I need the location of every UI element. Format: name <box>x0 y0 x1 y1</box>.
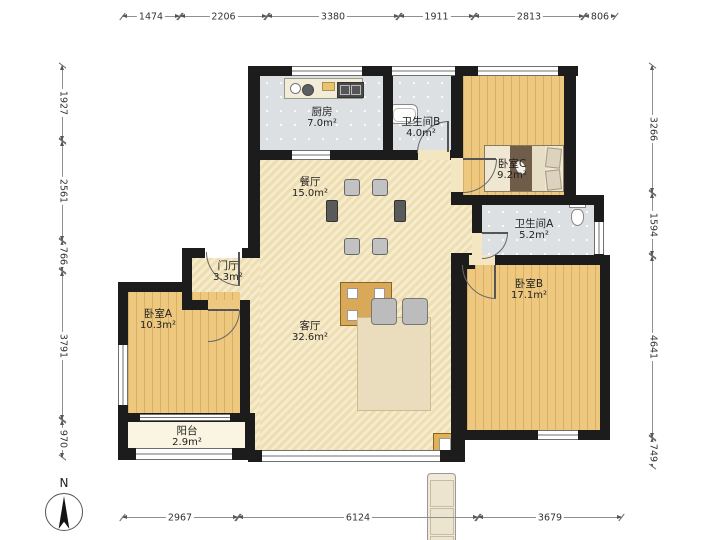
room-name: 卧室C <box>470 158 554 170</box>
wall <box>451 430 610 440</box>
wall <box>240 300 250 422</box>
dining-chair <box>372 238 388 255</box>
room-label-bath-a: 卫生间A 5.2m² <box>492 218 576 242</box>
room-area: 4.0m² <box>379 128 463 140</box>
stove-icon <box>337 82 364 98</box>
dim-top-6: 806 <box>584 10 616 23</box>
dining-side-chair <box>326 200 338 222</box>
sink-basin-icon <box>302 84 314 96</box>
bedroom-a-door-leaf <box>208 309 239 311</box>
room-name: 卧室B <box>487 278 571 290</box>
room-name: 门厅 <box>186 260 270 272</box>
wall <box>118 282 192 292</box>
dim-top-3: 3380 <box>267 10 399 23</box>
room-label-dining: 餐厅 15.0m² <box>268 176 352 200</box>
room-label-balcony: 阳台 2.9m² <box>145 425 229 449</box>
room-name: 卧室A <box>116 308 200 320</box>
room-area: 17.1m² <box>487 290 571 302</box>
dim-left-3: 766 <box>56 241 69 271</box>
room-area: 9.2m² <box>470 170 554 182</box>
wall <box>248 66 260 258</box>
room-area: 32.6m² <box>268 332 352 344</box>
wall <box>600 255 610 440</box>
room-area: 2.9m² <box>145 437 229 449</box>
sink-icon <box>290 83 301 94</box>
window <box>594 222 604 254</box>
bedroom-c-door-opening <box>451 158 463 192</box>
dim-top-5: 2813 <box>474 10 584 23</box>
burner-icon <box>340 85 350 95</box>
wall <box>451 195 604 205</box>
bath-a-door-opening <box>472 233 482 255</box>
dim-right-3: 4641 <box>646 256 659 438</box>
dining-side-chair <box>394 200 406 222</box>
dining-chair <box>344 238 360 255</box>
window <box>262 450 440 462</box>
wall <box>383 66 393 160</box>
small-appliance-icon <box>322 82 335 91</box>
kitchen-counter <box>284 78 363 99</box>
room-area: 3.3m² <box>186 272 270 284</box>
north-label: N <box>42 476 86 490</box>
dim-bottom-1: 2967 <box>122 511 238 524</box>
window <box>118 345 128 405</box>
room-name: 厨房 <box>280 106 364 118</box>
window <box>292 66 362 76</box>
sofa-cushion <box>430 536 454 540</box>
dim-bottom-3: 3679 <box>478 511 622 524</box>
armchair <box>371 298 397 325</box>
sofa <box>427 473 456 540</box>
wall <box>564 66 576 200</box>
rug <box>357 317 431 411</box>
room-label-bedroom-b: 卧室B 17.1m² <box>487 278 571 302</box>
room-label-living: 客厅 32.6m² <box>268 320 352 344</box>
kitchen-sliding-door <box>292 150 330 160</box>
room-label-foyer: 门厅 3.3m² <box>186 260 270 284</box>
room-name: 卫生间B <box>379 116 463 128</box>
dim-bottom-2: 6124 <box>238 511 478 524</box>
room-area: 5.2m² <box>492 230 576 242</box>
room-name: 卫生间A <box>492 218 576 230</box>
dim-right-4: 749 <box>646 438 659 467</box>
window <box>538 430 578 440</box>
room-label-bath-b: 卫生间B 4.0m² <box>379 116 463 140</box>
window <box>136 448 232 460</box>
floor-plan: 厨房 7.0m² 卫生间B 4.0m² 卧室C 9.2m² 餐厅 15.0m² … <box>0 0 720 540</box>
window <box>392 66 455 76</box>
dim-right-2: 1594 <box>646 193 659 256</box>
dim-left-1: 1927 <box>56 65 69 141</box>
dining-chair <box>372 179 388 196</box>
room-area: 7.0m² <box>280 118 364 130</box>
room-name: 阳台 <box>145 425 229 437</box>
room-area: 10.3m² <box>116 320 200 332</box>
wall <box>472 205 482 233</box>
burner-icon <box>351 85 361 95</box>
dim-left-2: 2561 <box>56 141 69 241</box>
armchair <box>402 298 428 325</box>
window <box>478 66 558 76</box>
dim-top-2: 2206 <box>180 10 267 23</box>
dim-left-4: 3791 <box>56 271 69 420</box>
room-name: 客厅 <box>268 320 352 332</box>
wall <box>451 261 467 434</box>
balcony-slider-window <box>140 414 230 421</box>
plate <box>347 288 358 299</box>
dim-left-5: 970 <box>56 420 69 458</box>
room-name: 餐厅 <box>268 176 352 188</box>
dim-right-1: 3266 <box>646 65 659 193</box>
dim-top-4: 1911 <box>399 10 474 23</box>
sofa-cushion <box>430 480 454 507</box>
room-label-bedroom-a: 卧室A 10.3m² <box>116 308 200 332</box>
room-label-bedroom-c: 卧室C 9.2m² <box>470 158 554 182</box>
north-compass: N <box>42 476 86 534</box>
dim-top-1: 1474 <box>122 10 180 23</box>
room-area: 15.0m² <box>268 188 352 200</box>
room-label-kitchen: 厨房 7.0m² <box>280 106 364 130</box>
